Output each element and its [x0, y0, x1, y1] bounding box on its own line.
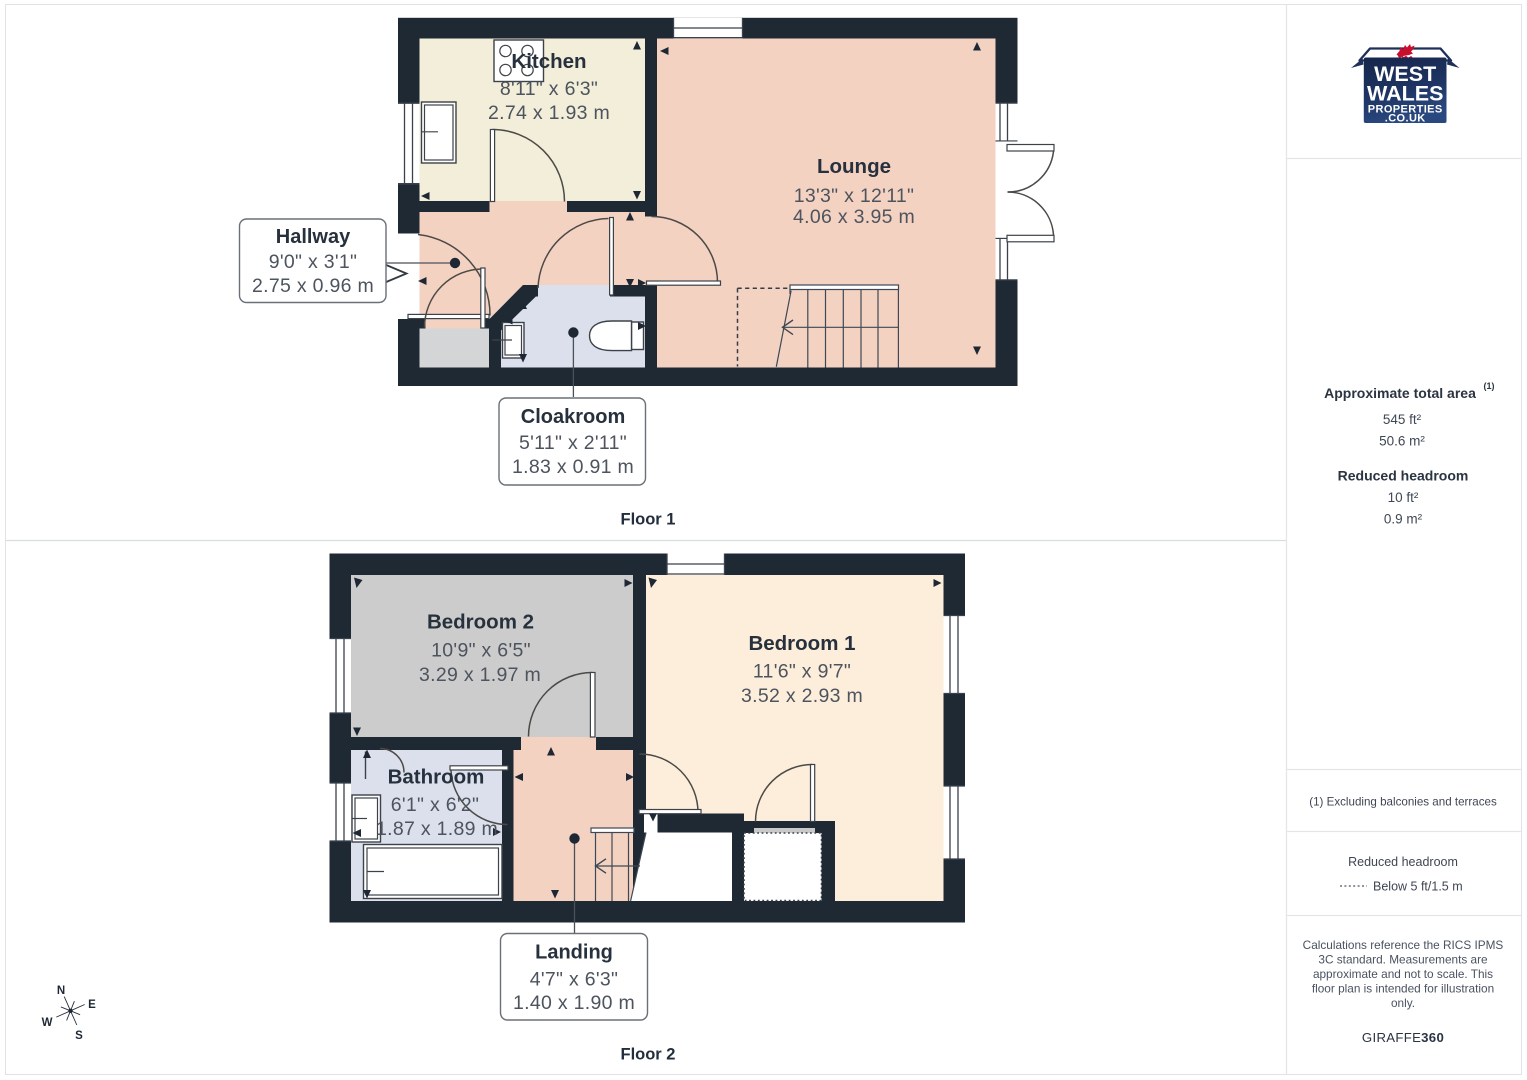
svg-text:13'3" x 12'11": 13'3" x 12'11" [794, 185, 915, 207]
svg-text:10'9" x 6'5": 10'9" x 6'5" [431, 640, 531, 662]
svg-text:Hallway: Hallway [276, 226, 351, 248]
svg-text:5'11" x 2'11": 5'11" x 2'11" [519, 432, 627, 454]
svg-text:WALES: WALES [1367, 82, 1443, 106]
svg-text:Floor 1: Floor 1 [620, 511, 675, 529]
svg-text:1.40 x 1.90 m: 1.40 x 1.90 m [513, 992, 635, 1014]
svg-text:W: W [42, 1017, 53, 1029]
svg-text:8'11" x 6'3": 8'11" x 6'3" [500, 78, 598, 100]
svg-text:Kitchen: Kitchen [511, 50, 586, 73]
svg-text:3.29 x 1.97 m: 3.29 x 1.97 m [419, 664, 541, 686]
svg-text:approximate and not to scale.: approximate and not to scale. This [1313, 967, 1493, 981]
svg-text:Approximate total area: Approximate total area [1324, 385, 1476, 401]
svg-text:10 ft²: 10 ft² [1388, 490, 1419, 505]
svg-text:2.74 x 1.93 m: 2.74 x 1.93 m [488, 102, 610, 124]
svg-text:Cloakroom: Cloakroom [521, 406, 625, 428]
svg-text:4.06 x 3.95 m: 4.06 x 3.95 m [793, 206, 915, 228]
svg-text:Reduced headroom: Reduced headroom [1348, 855, 1458, 869]
svg-text:floor plan is intended for ill: floor plan is intended for illustration [1312, 982, 1494, 996]
svg-text:1.83 x 0.91 m: 1.83 x 0.91 m [512, 456, 634, 478]
svg-text:4'7" x 6'3": 4'7" x 6'3" [530, 969, 619, 991]
svg-text:only.: only. [1391, 996, 1415, 1010]
svg-text:50.6 m²: 50.6 m² [1379, 434, 1425, 449]
svg-text:Landing: Landing [535, 942, 613, 964]
svg-text:Calculations reference the RIC: Calculations reference the RICS IPMS [1303, 938, 1504, 952]
svg-text:1.87 x 1.89 m: 1.87 x 1.89 m [376, 818, 498, 840]
svg-text:0.9 m²: 0.9 m² [1384, 512, 1423, 527]
svg-text:9'0" x 3'1": 9'0" x 3'1" [269, 251, 358, 273]
svg-text:GIRAFFE360: GIRAFFE360 [1362, 1030, 1444, 1045]
svg-text:3.52 x 2.93 m: 3.52 x 2.93 m [741, 685, 863, 707]
svg-text:N: N [57, 985, 65, 997]
svg-text:Bathroom: Bathroom [388, 766, 485, 789]
svg-text:2.75 x 0.96 m: 2.75 x 0.96 m [252, 275, 374, 297]
svg-text:6'1" x 6'2": 6'1" x 6'2" [391, 794, 480, 816]
svg-text:Floor 2: Floor 2 [620, 1046, 675, 1064]
svg-text:Bedroom 2: Bedroom 2 [427, 611, 534, 634]
svg-text:545 ft²: 545 ft² [1383, 412, 1422, 427]
svg-text:Below 5 ft/1.5 m: Below 5 ft/1.5 m [1373, 880, 1463, 894]
svg-text:E: E [88, 999, 96, 1011]
svg-text:(1) Excluding balconies and te: (1) Excluding balconies and terraces [1309, 796, 1497, 809]
svg-text:Lounge: Lounge [817, 155, 891, 178]
svg-text:11'6" x 9'7": 11'6" x 9'7" [753, 661, 851, 683]
svg-text:3C standard. Measurements are: 3C standard. Measurements are [1318, 953, 1488, 967]
svg-text:.CO.UK: .CO.UK [1385, 113, 1426, 125]
svg-text:(1): (1) [1484, 381, 1495, 391]
svg-text:Bedroom 1: Bedroom 1 [748, 632, 855, 655]
svg-text:Reduced headroom: Reduced headroom [1338, 468, 1469, 484]
svg-text:S: S [75, 1030, 83, 1042]
